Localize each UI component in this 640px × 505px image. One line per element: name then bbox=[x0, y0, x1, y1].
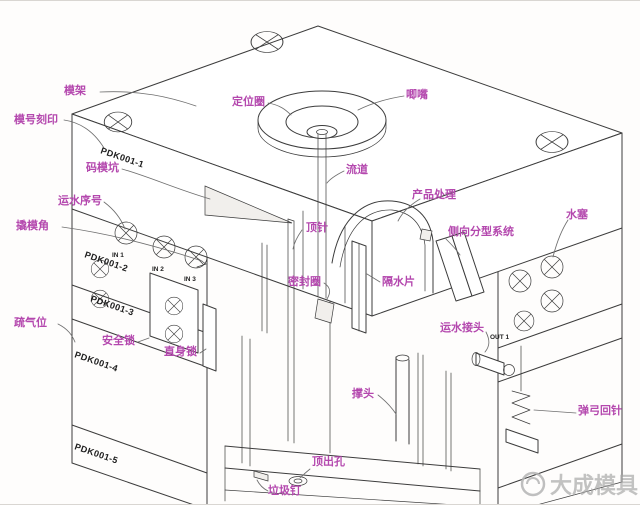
label-spring-return-pin: 弹弓回针 bbox=[578, 403, 622, 417]
water-baffle-graphic bbox=[352, 241, 366, 333]
label-water-baffle: 隔水片 bbox=[382, 274, 415, 288]
water-plug-ports bbox=[509, 256, 563, 331]
label-pry-corner: 撬模角 bbox=[16, 218, 49, 232]
spring-return-pin-graphic bbox=[506, 346, 538, 453]
label-side-parting: 侧向分型系统 bbox=[448, 224, 514, 238]
port-out1: OUT 1 bbox=[490, 334, 510, 341]
label-seal-ring: 密封圈 bbox=[288, 274, 321, 288]
label-straight-lock: 直身锁 bbox=[164, 344, 197, 358]
watermark-logo-swirl-icon bbox=[527, 478, 539, 484]
label-runner: 流道 bbox=[346, 162, 368, 176]
watermark: 大成模具 bbox=[522, 473, 638, 498]
label-ejector-pin: 顶针 bbox=[306, 220, 328, 234]
leader-support-pillar bbox=[378, 395, 396, 414]
label-water-line-number: 运水序号 bbox=[58, 193, 102, 207]
label-water-fitting: 运水接头 bbox=[440, 320, 484, 334]
label-support-pillar: 撑头 bbox=[352, 386, 374, 400]
label-sprue-bush: 唧嘴 bbox=[406, 87, 428, 101]
label-product-area: 产品处理 bbox=[412, 187, 456, 201]
watermark-text: 大成模具 bbox=[550, 473, 638, 498]
seal-ring-graphic bbox=[315, 299, 334, 323]
water-fitting-graphic bbox=[472, 353, 515, 376]
watermark-logo-icon bbox=[522, 473, 544, 495]
label-vent-slot: 疏气位 bbox=[14, 315, 47, 329]
leader-ejection-hole bbox=[300, 469, 310, 478]
port-in2: IN 2 bbox=[152, 266, 164, 273]
plate-number-3: PDK001-3 bbox=[89, 293, 135, 317]
label-safety-lock: 安全锁 bbox=[102, 333, 135, 347]
plate-number-5: PDK001-5 bbox=[73, 441, 119, 465]
leader-stop-pin bbox=[257, 480, 268, 491]
support-pillar-graphic bbox=[396, 355, 409, 444]
mold-diagram: 模架 模号刻印 码模坑 运水序号 撬模角 疏气位 安全锁 直身锁 定位圈 唧嘴 … bbox=[0, 1, 640, 505]
label-stop-pin: 垃圾钉 bbox=[268, 483, 301, 497]
plate-number-4: PDK001-4 bbox=[73, 349, 119, 373]
label-water-plug: 水塞 bbox=[566, 207, 589, 221]
label-clamp-slot: 码模坑 bbox=[86, 160, 119, 174]
leader-water-fitting bbox=[485, 332, 489, 352]
leader-spring-return-pin bbox=[534, 410, 576, 413]
label-locating-ring: 定位圈 bbox=[232, 94, 265, 108]
label-mold-number-stamp: 模号刻印 bbox=[14, 112, 58, 126]
port-in1: IN 1 bbox=[112, 252, 124, 259]
label-ejection-hole: 顶出孔 bbox=[312, 454, 345, 468]
label-mold-base: 模架 bbox=[64, 83, 86, 97]
port-in3: IN 3 bbox=[184, 276, 196, 283]
mold-drawing-page: 模架 模号刻印 码模坑 运水序号 撬模角 疏气位 安全锁 直身锁 定位圈 唧嘴 … bbox=[0, 0, 640, 505]
leader-safety-lock bbox=[138, 338, 149, 342]
